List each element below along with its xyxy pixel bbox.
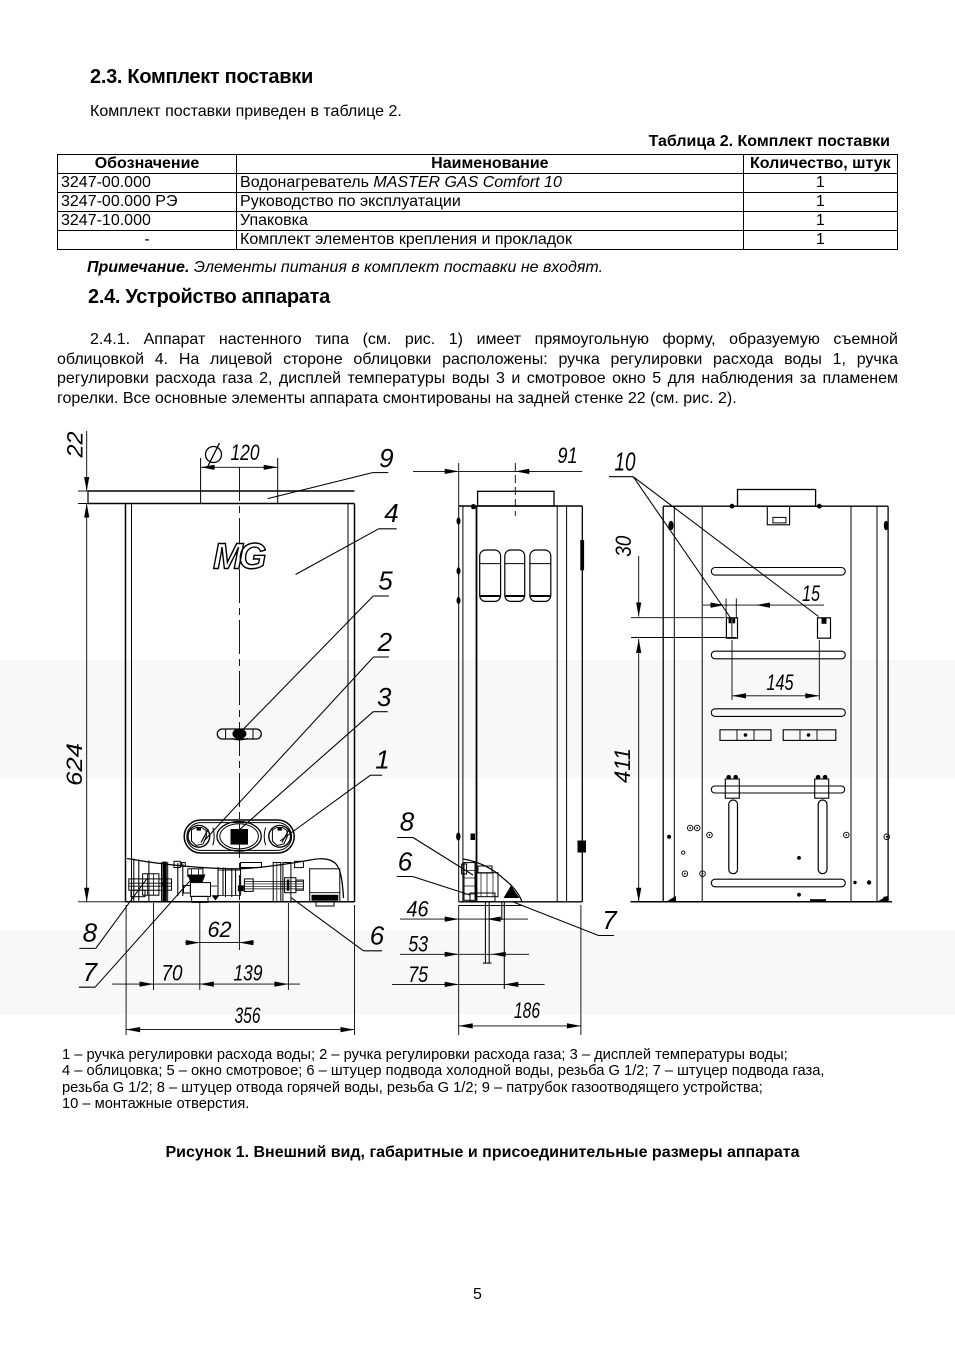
svg-text:22: 22 bbox=[63, 432, 88, 459]
svg-text:9: 9 bbox=[379, 443, 393, 473]
svg-text:6: 6 bbox=[370, 921, 385, 951]
svg-text:145: 145 bbox=[767, 670, 795, 695]
svg-text:624: 624 bbox=[62, 743, 87, 786]
svg-text:8: 8 bbox=[83, 917, 98, 947]
svg-text:139: 139 bbox=[234, 961, 263, 986]
svg-text:5: 5 bbox=[378, 565, 393, 595]
svg-text:3: 3 bbox=[377, 682, 392, 712]
svg-text:91: 91 bbox=[558, 443, 578, 468]
svg-text:7: 7 bbox=[602, 905, 618, 935]
svg-text:62: 62 bbox=[208, 917, 232, 942]
svg-text:10: 10 bbox=[615, 446, 636, 476]
svg-text:356: 356 bbox=[235, 1003, 262, 1028]
svg-text:15: 15 bbox=[802, 581, 821, 606]
svg-text:70: 70 bbox=[162, 961, 184, 986]
svg-text:8: 8 bbox=[400, 807, 415, 837]
svg-text:2: 2 bbox=[377, 627, 393, 657]
svg-text:53: 53 bbox=[408, 932, 429, 957]
svg-text:120: 120 bbox=[231, 440, 261, 465]
svg-text:75: 75 bbox=[408, 962, 429, 987]
svg-text:MG: MG bbox=[213, 536, 265, 577]
svg-text:46: 46 bbox=[407, 897, 430, 922]
svg-text:7: 7 bbox=[83, 957, 99, 987]
svg-text:1: 1 bbox=[375, 745, 389, 775]
svg-text:6: 6 bbox=[398, 846, 413, 876]
svg-text:186: 186 bbox=[514, 998, 541, 1023]
svg-text:411: 411 bbox=[610, 748, 635, 783]
svg-text:30: 30 bbox=[611, 535, 636, 557]
svg-text:4: 4 bbox=[384, 498, 398, 528]
